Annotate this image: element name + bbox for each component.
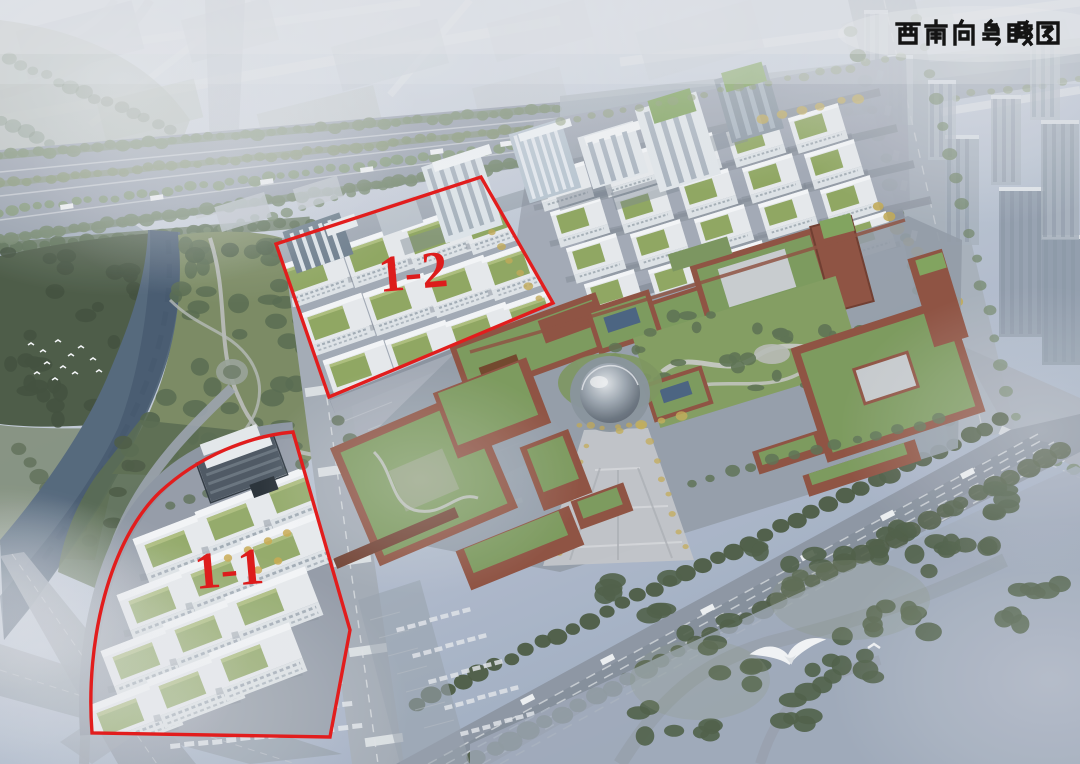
svg-text:1-2: 1-2 (376, 241, 450, 304)
svg-text:1-1: 1-1 (192, 538, 266, 601)
